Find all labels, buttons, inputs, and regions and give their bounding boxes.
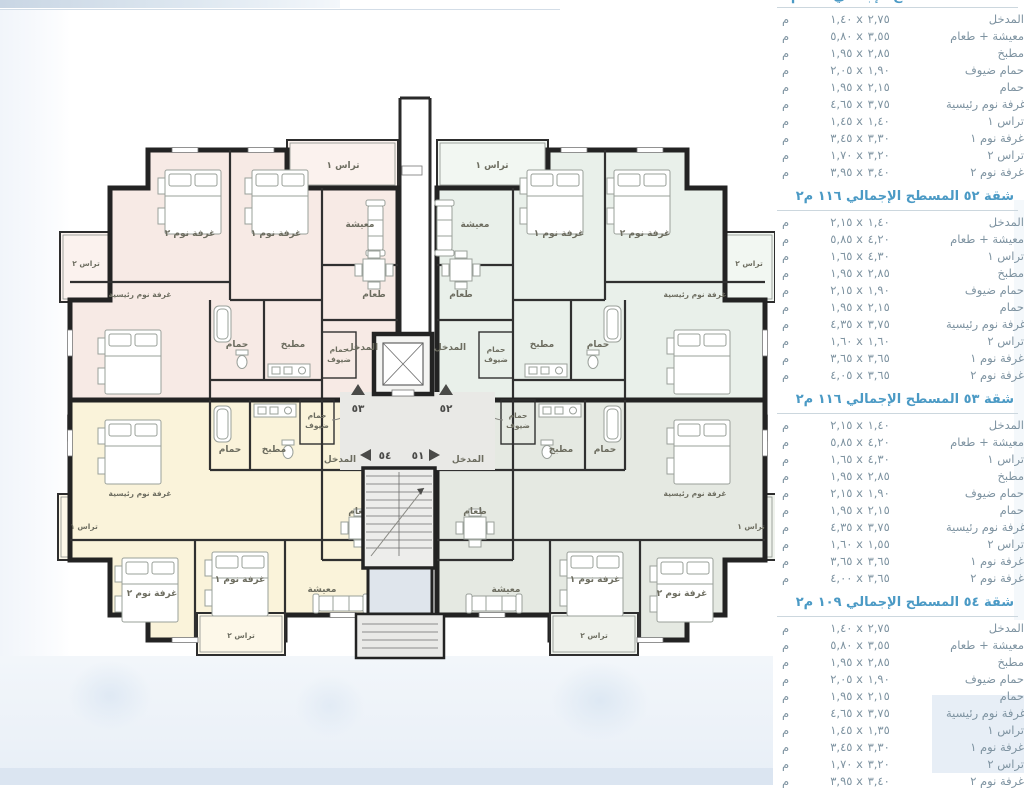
room-dimensions: ١,٦٥ x ٤,٣٠	[808, 452, 912, 466]
entry-vestibule	[368, 568, 432, 614]
unit-meter-label: م	[773, 723, 808, 737]
table-row: م ٥,٨٥ x ٤,٢٠ معيشة + طعام	[773, 230, 1024, 247]
label-52-terrace1: تراس ١	[475, 161, 508, 171]
label-51-living: معيشة	[492, 585, 521, 595]
unit-meter-label: م	[773, 317, 808, 331]
room-name: مطبخ	[912, 266, 1024, 280]
room-name: تراس ٢	[912, 537, 1024, 551]
unit-number-54: ٥٤	[379, 450, 392, 462]
room-dimensions: ١,٧٠ x ٣,٢٠	[808, 148, 912, 162]
room-dimensions: ٢,١٥ x ١,٤٠	[808, 418, 912, 432]
label-51-guestbath-2: ضيوف	[506, 421, 530, 430]
unit-meter-label: م	[773, 46, 808, 60]
room-name: المدخل	[912, 215, 1024, 229]
table-row: م ١,٩٥ x ٢,٨٥ مطبخ	[773, 653, 1024, 670]
room-name: المدخل	[912, 621, 1024, 635]
building-entrance	[356, 614, 444, 658]
room-name: حمام ضيوف	[912, 283, 1024, 297]
room-dimensions: ١,٩٥ x ٢,٨٥	[808, 266, 912, 280]
label-51-bed2: غرفة نوم ٢	[657, 589, 707, 599]
label-53-entrance: المدخل	[346, 343, 378, 353]
room-name: غرفة نوم ٢	[912, 774, 1024, 788]
room-dimensions: ٣,٩٥ x ٣,٤٠	[808, 774, 912, 788]
unit-meter-label: م	[773, 689, 808, 703]
table-row: م ٣,٦٥ x ٣,٦٥ غرفة نوم ١	[773, 349, 1024, 366]
table-section-54: شقة ٥٤ المسطح الإجمالي ١٠٩ م٢ م ١,٤٠ x ٢…	[773, 593, 1024, 789]
unit-meter-label: م	[773, 249, 808, 263]
label-53-kitchen: مطبخ	[281, 340, 306, 350]
label-53-bed2: غرفة نوم ٢	[165, 229, 215, 239]
room-dimensions: ١,٤٠ x ٢,٧٥	[808, 12, 912, 26]
label-52-terrace2: تراس ٢	[735, 259, 763, 268]
room-rows: م ٢,١٥ x ١,٤٠ المدخل م ٥,٨٥ x ٤,٢٠ معيشة…	[773, 414, 1024, 586]
room-name: حمام	[912, 503, 1024, 517]
unit-meter-label: م	[773, 774, 808, 788]
room-name: غرفة نوم ١	[912, 740, 1024, 754]
room-name: تراس ١	[912, 114, 1024, 128]
table-row: م ١,٩٥ x ٢,٨٥ مطبخ	[773, 264, 1024, 281]
room-dimensions: ١,٤٥ x ١,٤٠	[808, 114, 912, 128]
table-row: م ١,٤٥ x ١,٤٠ تراس ١	[773, 112, 1024, 129]
label-53-master: غرفة نوم رئيسية	[109, 290, 172, 299]
room-name: غرفة نوم ١	[912, 351, 1024, 365]
unit-meter-label: م	[773, 554, 808, 568]
room-name: المدخل	[912, 418, 1024, 432]
room-dimensions: ٢,٠٥ x ١,٩٠	[808, 672, 912, 686]
table-row: م ٤,٣٥ x ٣,٧٥ غرفة نوم رئيسية	[773, 315, 1024, 332]
room-dimensions: ٤,٠٠ x ٣,٦٥	[808, 571, 912, 585]
label-54-bed2: غرفة نوم ٢	[127, 589, 177, 599]
table-row: م ١,٩٥ x ٢,١٥ حمام	[773, 501, 1024, 518]
room-name: حمام	[912, 300, 1024, 314]
room-dimensions: ٤,٣٥ x ٣,٧٥	[808, 520, 912, 534]
table-row: م ٣,٩٥ x ٣,٤٠ غرفة نوم ٢	[773, 163, 1024, 180]
room-dimensions: ١,٦٥ x ٤,٣٠	[808, 249, 912, 263]
room-dimensions: ١,٩٥ x ٢,١٥	[808, 300, 912, 314]
room-name: معيشة + طعام	[912, 29, 1024, 43]
partial-heading-apartment-51: شقة ٥١ المسطح الإجمالي ١٠٩ م٢	[773, 0, 1024, 7]
label-53-living: معيشة	[346, 220, 375, 230]
table-row: م ١,٦٠ x ١,٦٠ تراس ٢	[773, 332, 1024, 349]
room-dimensions: ٣,٤٥ x ٣,٣٠	[808, 131, 912, 145]
label-54-guestbath-1: حمام	[308, 411, 327, 420]
room-dimensions: ٥,٨٠ x ٣,٥٥	[808, 638, 912, 652]
label-53-guestbath-2: ضيوف	[327, 355, 351, 364]
room-name: غرفة نوم رئيسية	[912, 706, 1024, 720]
unit-meter-label: م	[773, 503, 808, 517]
room-dimensions: ١,٤٥ x ١,٣٥	[808, 723, 912, 737]
table-row: م ٢,١٥ x ١,٩٠ حمام ضيوف	[773, 484, 1024, 501]
unit-meter-label: م	[773, 571, 808, 585]
room-name: غرفة نوم ٢	[912, 571, 1024, 585]
table-row: م ٢,٠٥ x ١,٩٠ حمام ضيوف	[773, 670, 1024, 687]
label-52-bed2: غرفة نوم ٢	[620, 229, 670, 239]
table-row: م ١,٤٠ x ٢,٧٥ المدخل	[773, 619, 1024, 636]
room-name: معيشة + طعام	[912, 232, 1024, 246]
label-53-bath: حمام	[226, 340, 249, 350]
label-51-terrace1: تراس ١	[737, 522, 765, 531]
room-dimensions: ٣,٩٥ x ٣,٤٠	[808, 165, 912, 179]
table-row: م ٤,٦٥ x ٣,٧٥ غرفة نوم رئيسية	[773, 95, 1024, 112]
room-dimensions: ١,٦٠ x ١,٥٥	[808, 537, 912, 551]
table-row: م ١,٦٥ x ٤,٣٠ تراس ١	[773, 450, 1024, 467]
unit-meter-label: م	[773, 215, 808, 229]
unit-meter-label: م	[773, 97, 808, 111]
table-row: م ١,٦٥ x ٤,٣٠ تراس ١	[773, 247, 1024, 264]
table-row: م ٣,٤٥ x ٣,٣٠ غرفة نوم ١	[773, 738, 1024, 755]
label-52-guestbath-1: حمام	[487, 345, 506, 354]
unit-meter-label: م	[773, 452, 808, 466]
label-51-kitchen: مطبخ	[549, 445, 574, 455]
table-row: م ٢,١٥ x ١,٤٠ المدخل	[773, 416, 1024, 433]
unit-meter-label: م	[773, 266, 808, 280]
room-name: غرفة نوم ١	[912, 131, 1024, 145]
table-row: م ٢,١٥ x ١,٩٠ حمام ضيوف	[773, 281, 1024, 298]
label-52-guestbath-2: ضيوف	[484, 355, 508, 364]
section-heading-52: شقة ٥٢ المسطح الإجمالي ١١٦ م٢	[779, 187, 1014, 207]
table-row: م ٣,٦٥ x ٣,٦٥ غرفة نوم ١	[773, 552, 1024, 569]
room-dimensions: ١,٩٥ x ٢,٨٥	[808, 469, 912, 483]
room-dimensions: ٥,٨٥ x ٤,٢٠	[808, 435, 912, 449]
floor-plan: تراس ١ غرفة نوم ٢ غرفة نوم ١ معيشة تراس …	[0, 0, 775, 785]
room-rows: م ٢,١٥ x ١,٤٠ المدخل م ٥,٨٥ x ٤,٢٠ معيشة…	[773, 211, 1024, 383]
room-dimensions: ٥,٨٠ x ٣,٥٥	[808, 29, 912, 43]
label-54-entrance: المدخل	[324, 455, 356, 465]
label-53-terrace2: تراس ٢	[72, 259, 100, 268]
table-section-53: شقة ٥٣ المسطح الإجمالي ١١٦ م٢ م ٢,١٥ x ١…	[773, 390, 1024, 586]
staircase	[363, 468, 435, 568]
table-row: م ١,٧٠ x ٣,٢٠ تراس ٢	[773, 146, 1024, 163]
room-dimensions: ٤,٦٥ x ٣,٧٥	[808, 97, 912, 111]
label-54-master: غرفة نوم رئيسية	[109, 489, 172, 498]
label-51-bed1: غرفة نوم ١	[570, 575, 620, 585]
table-section-52: شقة ٥٢ المسطح الإجمالي ١١٦ م٢ م ٢,١٥ x ١…	[773, 187, 1024, 383]
unit-meter-label: م	[773, 63, 808, 77]
elevator-shaft-column	[400, 98, 430, 334]
unit-meter-label: م	[773, 232, 808, 246]
room-dimensions: ١,٩٥ x ٢,١٥	[808, 80, 912, 94]
unit-number-52: ٥٢	[440, 403, 453, 415]
table-row: م ١,٩٥ x ٢,١٥ حمام	[773, 687, 1024, 704]
label-51-dining: طعام	[463, 507, 487, 517]
table-row: م ٤,٠٠ x ٣,٦٥ غرفة نوم ٢	[773, 569, 1024, 586]
label-51-bath: حمام	[594, 445, 617, 455]
table-row: م ٤,٣٥ x ٣,٧٥ غرفة نوم رئيسية	[773, 518, 1024, 535]
table-row: م ٤,٦٥ x ٣,٧٥ غرفة نوم رئيسية	[773, 704, 1024, 721]
table-row: م ٢,٠٥ x ١,٩٠ حمام ضيوف	[773, 61, 1024, 78]
section-heading-54: شقة ٥٤ المسطح الإجمالي ١٠٩ م٢	[779, 593, 1014, 613]
label-54-terrace1: تراس ١	[70, 522, 98, 531]
room-name: تراس ١	[912, 723, 1024, 737]
room-name: تراس ٢	[912, 757, 1024, 771]
unit-meter-label: م	[773, 368, 808, 382]
unit-meter-label: م	[773, 114, 808, 128]
room-name: تراس ١	[912, 452, 1024, 466]
label-53-terrace1: تراس ١	[326, 161, 359, 171]
table-row: م ١,٤٠ x ٢,٧٥ المدخل	[773, 10, 1024, 27]
unit-number-51: ٥١	[412, 450, 425, 462]
table-row: م ٣,٩٥ x ٣,٤٠ غرفة نوم ٢	[773, 772, 1024, 789]
table-row: م ١,٩٥ x ٢,٨٥ مطبخ	[773, 44, 1024, 61]
label-52-living: معيشة	[461, 220, 490, 230]
room-name: حمام ضيوف	[912, 486, 1024, 500]
room-dimensions: ١,٧٠ x ٣,٢٠	[808, 757, 912, 771]
unit-meter-label: م	[773, 351, 808, 365]
label-54-terrace2: تراس ٢	[227, 631, 255, 640]
label-54-living: معيشة	[308, 585, 337, 595]
table-row: م ١,٩٥ x ٢,١٥ حمام	[773, 78, 1024, 95]
label-52-kitchen: مطبخ	[530, 340, 555, 350]
unit-meter-label: م	[773, 435, 808, 449]
room-dimensions: ٣,٤٥ x ٣,٣٠	[808, 740, 912, 754]
room-name: حمام ضيوف	[912, 63, 1024, 77]
room-name: تراس ٢	[912, 148, 1024, 162]
label-52-master: غرفة نوم رئيسية	[664, 290, 727, 299]
unit-meter-label: م	[773, 148, 808, 162]
room-dimensions: ٢,٠٥ x ١,٩٠	[808, 63, 912, 77]
label-52-bed1: غرفة نوم ١	[534, 229, 584, 239]
table-row: م ٥,٨٥ x ٤,٢٠ معيشة + طعام	[773, 433, 1024, 450]
label-51-master: غرفة نوم رئيسية	[664, 489, 727, 498]
brochure-page: { "panel": { "unit_label": "م", "partial…	[0, 0, 1024, 785]
room-dimensions: ١,٩٥ x ٢,١٥	[808, 689, 912, 703]
label-53-bed1: غرفة نوم ١	[251, 229, 301, 239]
room-name: معيشة + طعام	[912, 638, 1024, 652]
table-row: م ١,٩٥ x ٢,١٥ حمام	[773, 298, 1024, 315]
room-dimensions: ١,٩٥ x ٢,٨٥	[808, 46, 912, 60]
unit-meter-label: م	[773, 520, 808, 534]
room-dimensions: ٢,١٥ x ١,٩٠	[808, 283, 912, 297]
room-name: المدخل	[912, 12, 1024, 26]
unit-meter-label: م	[773, 12, 808, 26]
room-name: غرفة نوم ٢	[912, 165, 1024, 179]
unit-meter-label: م	[773, 621, 808, 635]
room-dimensions: ١,٦٠ x ١,٦٠	[808, 334, 912, 348]
table-row: م ١,٩٥ x ٢,٨٥ مطبخ	[773, 467, 1024, 484]
room-name: تراس ٢	[912, 334, 1024, 348]
label-54-bed1: غرفة نوم ١	[215, 575, 265, 585]
room-name: معيشة + طعام	[912, 435, 1024, 449]
room-dimensions: ١,٩٥ x ٢,٨٥	[808, 655, 912, 669]
table-row: م ٣,٤٥ x ٣,٣٠ غرفة نوم ١	[773, 129, 1024, 146]
label-54-guestbath-2: ضيوف	[305, 421, 329, 430]
room-name: حمام	[912, 689, 1024, 703]
table-row: م ١,٤٥ x ١,٣٥ تراس ١	[773, 721, 1024, 738]
room-dimensions: ٤,٣٥ x ٣,٧٥	[808, 317, 912, 331]
unit-meter-label: م	[773, 638, 808, 652]
unit-meter-label: م	[773, 537, 808, 551]
room-name: غرفة نوم رئيسية	[912, 520, 1024, 534]
room-rows: م ١,٤٠ x ٢,٧٥ المدخل م ٥,٨٠ x ٣,٥٥ معيشة…	[773, 8, 1024, 180]
room-name: حمام ضيوف	[912, 672, 1024, 686]
table-row: م ٥,٨٠ x ٣,٥٥ معيشة + طعام	[773, 27, 1024, 44]
room-name: مطبخ	[912, 469, 1024, 483]
label-54-bath: حمام	[219, 445, 242, 455]
label-52-entrance: المدخل	[434, 343, 466, 353]
room-name: غرفة نوم رئيسية	[912, 97, 1024, 111]
label-54-kitchen: مطبخ	[262, 445, 287, 455]
room-name: غرفة نوم ٢	[912, 368, 1024, 382]
unit-meter-label: م	[773, 165, 808, 179]
unit-meter-label: م	[773, 757, 808, 771]
unit-number-53: ٥٣	[352, 403, 365, 415]
unit-meter-label: م	[773, 334, 808, 348]
label-52-dining: طعام	[449, 290, 473, 300]
unit-meter-label: م	[773, 418, 808, 432]
unit-meter-label: م	[773, 672, 808, 686]
unit-meter-label: م	[773, 29, 808, 43]
room-dimensions: ٤,٦٥ x ٣,٧٥	[808, 706, 912, 720]
room-name: مطبخ	[912, 655, 1024, 669]
room-dimensions: ١,٤٠ x ٢,٧٥	[808, 621, 912, 635]
unit-meter-label: م	[773, 300, 808, 314]
table-row: م ١,٦٠ x ١,٥٥ تراس ٢	[773, 535, 1024, 552]
room-dimensions: ٢,١٥ x ١,٤٠	[808, 215, 912, 229]
room-name: غرفة نوم رئيسية	[912, 317, 1024, 331]
label-51-entrance: المدخل	[452, 455, 484, 465]
room-dimensions: ٢,١٥ x ١,٩٠	[808, 486, 912, 500]
room-name: حمام	[912, 80, 1024, 94]
dimensions-panel: شقة ٥١ المسطح الإجمالي ١٠٩ م٢ م ١,٤٠ x ٢…	[773, 0, 1024, 785]
room-dimensions: ١,٩٥ x ٢,١٥	[808, 503, 912, 517]
unit-meter-label: م	[773, 706, 808, 720]
label-52-bath: حمام	[587, 340, 610, 350]
unit-meter-label: م	[773, 655, 808, 669]
room-dimensions: ٣,٦٥ x ٣,٦٥	[808, 554, 912, 568]
unit-meter-label: م	[773, 131, 808, 145]
label-51-guestbath-1: حمام	[509, 411, 528, 420]
unit-meter-label: م	[773, 486, 808, 500]
unit-meter-label: م	[773, 283, 808, 297]
unit-meter-label: م	[773, 469, 808, 483]
unit-meter-label: م	[773, 740, 808, 754]
label-51-terrace2: تراس ٢	[580, 631, 608, 640]
section-heading-53: شقة ٥٣ المسطح الإجمالي ١١٦ م٢	[779, 390, 1014, 410]
unit-meter-label: م	[773, 80, 808, 94]
table-row: م ٥,٨٠ x ٣,٥٥ معيشة + طعام	[773, 636, 1024, 653]
table-row: م ١,٧٠ x ٣,٢٠ تراس ٢	[773, 755, 1024, 772]
room-dimensions: ٥,٨٥ x ٤,٢٠	[808, 232, 912, 246]
room-name: تراس ١	[912, 249, 1024, 263]
table-section-51: م ١,٤٠ x ٢,٧٥ المدخل م ٥,٨٠ x ٣,٥٥ معيشة…	[773, 7, 1024, 180]
room-rows: م ١,٤٠ x ٢,٧٥ المدخل م ٥,٨٠ x ٣,٥٥ معيشة…	[773, 617, 1024, 789]
table-row: م ٤,٠٥ x ٣,٦٥ غرفة نوم ٢	[773, 366, 1024, 383]
room-name: مطبخ	[912, 46, 1024, 60]
room-name: غرفة نوم ١	[912, 554, 1024, 568]
label-53-dining: طعام	[362, 290, 386, 300]
table-row: م ٢,١٥ x ١,٤٠ المدخل	[773, 213, 1024, 230]
room-dimensions: ٤,٠٥ x ٣,٦٥	[808, 368, 912, 382]
room-dimensions: ٣,٦٥ x ٣,٦٥	[808, 351, 912, 365]
